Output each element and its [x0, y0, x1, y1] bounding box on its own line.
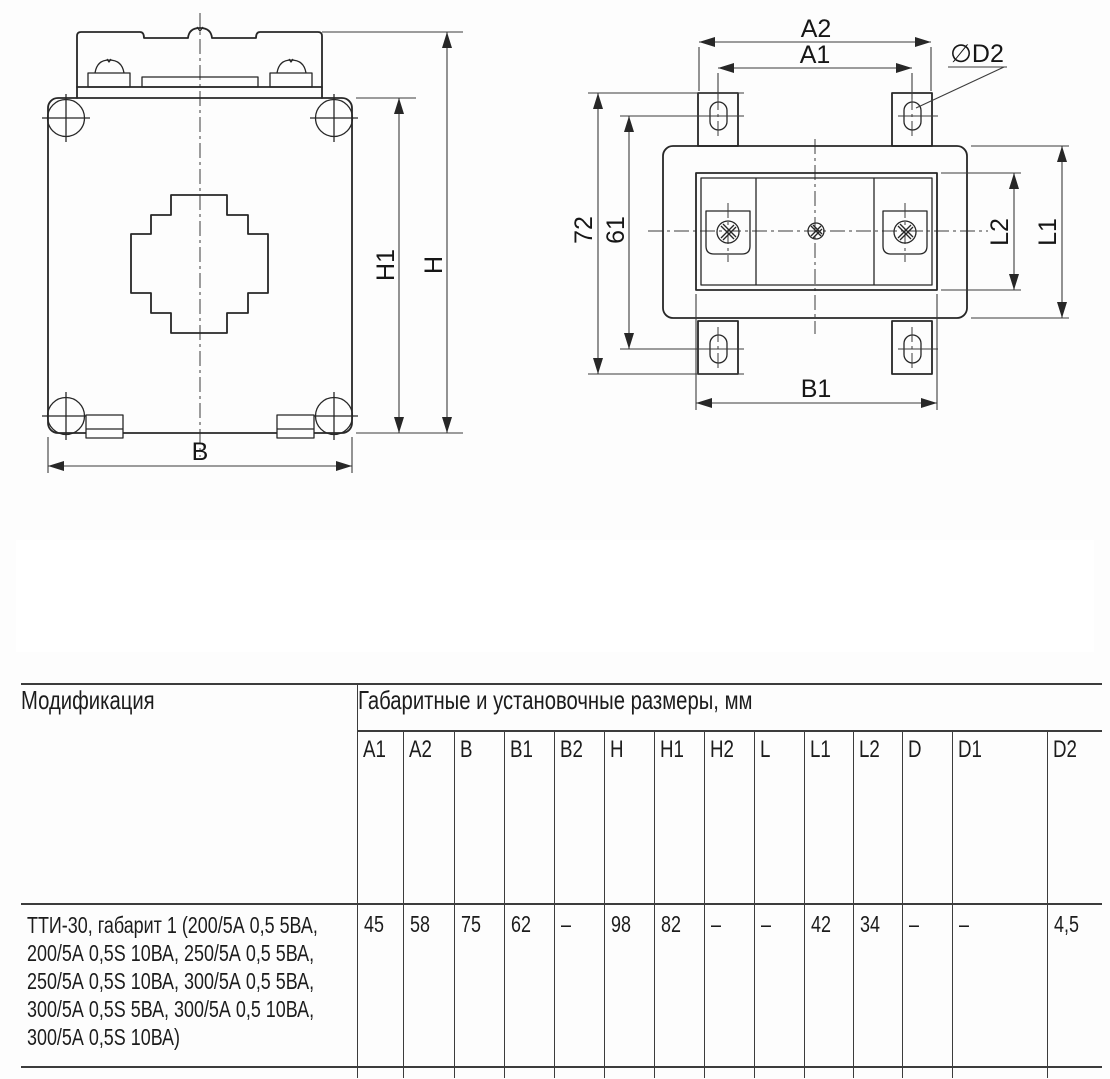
arrowhead: [718, 63, 734, 73]
col-header-H: H: [604, 731, 654, 904]
value-L: –: [754, 904, 804, 1067]
dim-label-a2: A2: [801, 15, 832, 43]
arrowhead: [442, 32, 452, 48]
arrowhead: [1057, 146, 1067, 162]
arrowhead: [336, 461, 352, 471]
datasheet-page: B H1 H: [0, 0, 1110, 1079]
arrowhead: [394, 98, 404, 114]
col-header-H2: H2: [704, 731, 754, 904]
dim-h: H: [322, 32, 463, 433]
value-H1: 82: [654, 904, 704, 1067]
col-header-D2: D2: [1047, 731, 1102, 904]
arrowhead: [593, 93, 603, 109]
dim-label-61: 61: [602, 216, 630, 244]
din-clip: [86, 415, 123, 438]
dim-label-b1: B1: [801, 375, 832, 403]
mounting-tab: [892, 321, 938, 374]
dim-b1: B1: [696, 294, 937, 410]
dim-label-d2: ∅D2: [950, 40, 1004, 68]
corner-screw: [42, 94, 90, 142]
value-A1: 45: [357, 904, 403, 1067]
right-terminal-base: [270, 73, 312, 87]
value-H2: –: [704, 904, 754, 1067]
arrowhead: [593, 358, 603, 374]
arrowhead: [696, 398, 712, 408]
value-L2: 34: [853, 904, 902, 1067]
modification-header: Модификация: [21, 684, 357, 904]
arrowhead: [1057, 302, 1067, 318]
col-header-L2: L2: [853, 731, 902, 904]
top-view: A2 A1 ∅D2: [570, 15, 1069, 410]
din-clip: [277, 415, 314, 438]
col-header-L: L: [754, 731, 804, 904]
dim-label-l2: L2: [986, 218, 1014, 246]
arrowhead: [915, 37, 931, 47]
dim-label-h1: H1: [372, 249, 400, 281]
col-header-A1: A1: [357, 731, 403, 904]
arrowhead: [921, 398, 937, 408]
arrowhead: [896, 63, 912, 73]
col-header-D: D: [902, 731, 952, 904]
col-header-H1: H1: [654, 731, 704, 904]
dim-a1: A1: [718, 41, 912, 99]
arrowhead: [442, 417, 452, 433]
value-B: 75: [454, 904, 504, 1067]
value-B1: 62: [504, 904, 554, 1067]
value-H: 98: [604, 904, 654, 1067]
value-B2: –: [554, 904, 604, 1067]
dimensions-table: Модификация Габаритные и установочные ра…: [21, 683, 1102, 1068]
col-header-D1: D1: [952, 731, 1047, 904]
arrowhead: [1009, 173, 1019, 189]
col-header-A2: A2: [403, 731, 454, 904]
dim-b: B: [48, 437, 352, 473]
arrowhead: [394, 417, 404, 433]
value-L1: 42: [804, 904, 853, 1067]
dim-label-h: H: [420, 256, 448, 274]
mounting-tab: [620, 93, 744, 146]
dim-61: 61: [602, 116, 634, 349]
terminal-screw: [706, 203, 750, 262]
dim-label-l1: L1: [1034, 218, 1062, 246]
arrowhead: [624, 116, 634, 132]
arrowhead: [699, 37, 715, 47]
col-header-B1: B1: [504, 731, 554, 904]
terminal-screw: [883, 203, 927, 262]
left-terminal-base: [88, 73, 130, 87]
mounting-tab: [620, 321, 744, 374]
value-D2: 4,5: [1047, 904, 1102, 1067]
corner-screw: [310, 94, 358, 142]
dim-d2-callout: ∅D2: [916, 40, 1007, 108]
value-D1: –: [952, 904, 1047, 1067]
arrowhead: [48, 461, 64, 471]
dimensions-group-header: Габаритные и установочные размеры, мм: [357, 684, 1102, 731]
front-view: B H1 H: [42, 13, 463, 473]
value-D: –: [902, 904, 952, 1067]
col-header-B: B: [454, 731, 504, 904]
dimensional-drawing: B H1 H: [0, 0, 1110, 510]
value-A2: 58: [403, 904, 454, 1067]
dim-label-72: 72: [570, 216, 598, 244]
dim-label-b: B: [192, 438, 209, 466]
dim-label-a1: A1: [800, 41, 831, 69]
arrowhead: [624, 333, 634, 349]
spec-row: ТТИ-30, габарит 1 (200/5А 0,5 5ВА, 200/5…: [21, 904, 1102, 1067]
col-header-B2: B2: [554, 731, 604, 904]
modification-cell: ТТИ-30, габарит 1 (200/5А 0,5 5ВА, 200/5…: [21, 904, 357, 1067]
blank-strip: [16, 540, 1094, 652]
arrowhead: [1009, 274, 1019, 290]
col-header-L1: L1: [804, 731, 853, 904]
